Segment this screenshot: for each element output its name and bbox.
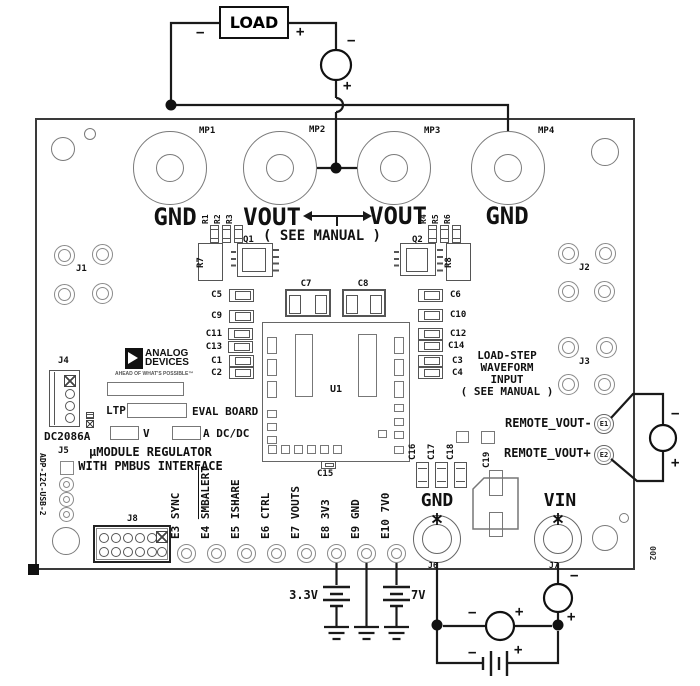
j3-pad (596, 337, 617, 358)
mp4-label: MP4 (538, 127, 554, 136)
j8-pin (111, 533, 121, 543)
eval-board-label: EVAL BOARD (192, 406, 258, 417)
j8-label: J8 (127, 515, 138, 524)
voltmeter-right-letter: V (653, 431, 673, 446)
u1-pad (378, 430, 387, 438)
pad (481, 431, 495, 444)
turret-e10 (387, 544, 406, 563)
u1-pad (267, 423, 277, 431)
turret-e3 (177, 544, 196, 563)
c19-label: C19 (483, 452, 492, 468)
c17-label: C17 (428, 444, 437, 460)
turret-e5 (237, 544, 256, 563)
turret-j6-center (422, 524, 452, 554)
j5-label: J5 (58, 447, 69, 456)
c5-body (229, 289, 254, 302)
j8-pin (135, 533, 145, 543)
u1-detail (295, 334, 313, 397)
voltmeter-bottom-plus-sign: + (515, 605, 523, 619)
pin-label-e4: E4 SMBALERT (200, 466, 211, 539)
turret-mp2-center (266, 154, 294, 182)
j4-pin (65, 401, 75, 411)
r3-label: R3 (226, 214, 235, 224)
u1-pad (268, 445, 277, 454)
c15-label: C15 (317, 470, 333, 479)
u1-pad (333, 445, 342, 454)
j2-pad (594, 281, 615, 302)
vout-left-label: VOUT (236, 205, 308, 229)
mp1-label: MP1 (199, 127, 215, 136)
blank-field (107, 382, 184, 396)
loadstep-note: LOAD-STEP WAVEFORM INPUT ( SEE MANUAL ) (452, 350, 562, 398)
battery-33v-label: 3.3V (280, 589, 318, 601)
r1-label: R1 (202, 214, 211, 224)
vin-power-label: VIN (538, 492, 582, 510)
u1-pad (394, 359, 404, 376)
j8-pin (147, 547, 157, 557)
c1-label: C1 (190, 357, 222, 366)
u1-pad (267, 337, 277, 354)
r7-label: R7 (197, 257, 206, 268)
pin-label-e3: E3 SYNC (170, 493, 181, 539)
small-hole-icon (619, 513, 629, 523)
battery-source-icon (483, 651, 507, 676)
pin-label-e6: E6 CTRL (260, 493, 271, 539)
j1-pad (92, 283, 113, 304)
c13-body (228, 341, 253, 353)
mount-hole-icon (52, 527, 80, 555)
c13-label: C13 (190, 343, 222, 352)
u1-label: U1 (330, 385, 342, 395)
u1-pad (267, 381, 277, 398)
ammeter-top-plus-sign: + (343, 79, 351, 93)
c19-pad (489, 512, 503, 537)
u1-pad (281, 445, 290, 454)
j8-pin (123, 547, 133, 557)
c8-label: C8 (347, 280, 379, 289)
ltp-blank-field (127, 403, 187, 418)
u1-pad (267, 436, 277, 444)
r5-label: R5 (432, 214, 441, 224)
turret-e4 (207, 544, 226, 563)
u1-pad (394, 446, 404, 454)
mount-hole-icon (51, 137, 75, 161)
c3-body (418, 355, 443, 367)
battery-33v-icon (323, 587, 350, 606)
j8-pin (111, 547, 121, 557)
j3-label: J3 (579, 358, 590, 367)
c1-body (229, 355, 254, 367)
voltmeter-bottom-letter: V (490, 619, 510, 634)
remote-vout-minus-label: REMOTE_VOUT- (505, 417, 592, 429)
r2-pad (222, 225, 231, 243)
model-number-label: DC2086A (44, 431, 90, 442)
pin-label-e5: E5 ISHARE (230, 479, 241, 539)
r1-pad (210, 225, 219, 243)
j1-pad (92, 244, 113, 265)
c9-label: C9 (190, 312, 222, 321)
j8-pin (99, 547, 109, 557)
v-unit-label: V (143, 428, 150, 439)
battery-minus-sign: − (468, 646, 476, 660)
c19-pad (489, 470, 503, 496)
gnd-left-label: GND (145, 205, 205, 229)
c7-label: C7 (290, 280, 322, 289)
pin-label-e10: E10 7V0 (380, 493, 391, 539)
a-dcdc-label: A DC/DC (203, 428, 249, 439)
c16-label: C16 (409, 444, 418, 460)
u1-pad (267, 359, 277, 376)
small-hole-icon (84, 128, 96, 140)
j4-label: J4 (58, 357, 69, 366)
small-component-icon (86, 412, 94, 419)
q1-pins-icon (231, 251, 236, 271)
ltp-label: LTP (106, 405, 126, 416)
ammeter-bottom-minus-sign: − (570, 569, 578, 583)
q2-inner (406, 248, 428, 272)
turret-j7-center (543, 524, 573, 554)
c6-label: C6 (450, 291, 461, 300)
c18-label: C18 (447, 444, 456, 460)
c10-label: C10 (450, 311, 466, 320)
turret-e9 (357, 544, 376, 563)
ground-icon (324, 627, 409, 639)
battery-7v-label: 7V (411, 589, 425, 601)
c18-body (454, 462, 467, 488)
schematic-canvas: MP1 MP2 MP3 MP4 GND VOUT VOUT GND ( SEE … (0, 0, 700, 686)
turret-e2: E2 (594, 445, 614, 465)
r4-pad (428, 225, 437, 243)
u1-pad (394, 337, 404, 354)
j2-pad (558, 281, 579, 302)
j8-pin (135, 547, 145, 557)
turret-mp1-center (156, 154, 184, 182)
u1-pad (320, 445, 329, 454)
turret-e1: E1 (594, 414, 614, 434)
u1-pad (294, 445, 303, 454)
pin-label-e8: E8 3V3 (320, 499, 331, 539)
r6-pad (452, 225, 461, 243)
c12-body (418, 328, 443, 340)
c14-body (418, 340, 443, 352)
c16-body (416, 462, 429, 488)
ammeter-bottom-plus-sign: + (567, 610, 575, 624)
r2-label: R2 (214, 214, 223, 224)
turret-e8 (327, 544, 346, 563)
turret-e7 (297, 544, 316, 563)
u1-pad (267, 410, 277, 418)
turret-e6 (267, 544, 286, 563)
j5-pad (59, 477, 74, 492)
mount-hole-icon (591, 138, 619, 166)
c11-label: C11 (190, 330, 222, 339)
module-regulator-label: μMODULE REGULATOR (89, 446, 211, 458)
c9-body (229, 310, 254, 323)
c2-body (229, 367, 254, 379)
mp3-label: MP3 (424, 127, 440, 136)
ammeter-top-minus-sign: − (347, 34, 355, 48)
small-component-icon (86, 420, 94, 428)
j8-pin (123, 533, 133, 543)
pin-label-e9: E9 GND (350, 499, 361, 539)
see-manual-note: ( SEE MANUAL ) (260, 229, 384, 243)
q2-pins-icon (437, 249, 443, 273)
side-text-right: 002 (648, 546, 656, 560)
voltmeter-right-plus-sign: + (671, 456, 679, 470)
battery-7v-icon (383, 587, 410, 606)
load-minus-sign: − (196, 26, 204, 40)
j7-label: J7 (549, 562, 559, 570)
junction-dot-icon (166, 100, 177, 111)
r6-label: R6 (444, 214, 453, 224)
turret-mp4-center (494, 154, 522, 182)
battery-plus-sign: + (514, 643, 522, 657)
board-corner-mark (28, 564, 39, 575)
j1-pad (54, 284, 75, 305)
a-blank-field (172, 426, 201, 440)
j6-label: J6 (428, 562, 438, 570)
j2-pad (558, 243, 579, 264)
q1-pins-icon (273, 249, 279, 273)
c6-body (418, 289, 443, 302)
voltmeter-bottom-minus-sign: − (468, 606, 476, 620)
j8-pin (99, 533, 109, 543)
c15-body (321, 461, 336, 469)
mp2-label: MP2 (309, 126, 325, 135)
j4-pin (65, 413, 75, 423)
u1-detail (358, 334, 377, 397)
voltmeter-right-minus-sign: − (671, 407, 679, 421)
j3-pad (594, 374, 615, 395)
c10-body (418, 309, 443, 322)
j2-label: J2 (579, 264, 590, 273)
j5-pad (59, 492, 74, 507)
u1-pad (394, 431, 404, 439)
c8-body (342, 289, 386, 317)
j5-pin1-pad (60, 461, 74, 475)
j1-label: J1 (76, 265, 87, 274)
mount-hole-icon (592, 525, 618, 551)
j8-pin1-icon (156, 531, 168, 543)
c4-body (418, 367, 443, 379)
wire-load-negative (171, 23, 219, 105)
j5-pad (59, 507, 74, 522)
wire-hop-arc (336, 98, 343, 112)
c17-body (435, 462, 448, 488)
u1-pad (394, 404, 404, 412)
load-box: LOAD (219, 6, 289, 39)
j4-pin1-icon (64, 375, 76, 387)
q1-inner (242, 248, 266, 272)
r5-pad (440, 225, 449, 243)
u1-pad (394, 418, 404, 426)
gnd-right-label: GND (477, 204, 537, 228)
analog-devices-logo-icon (125, 348, 143, 369)
logo-tagline: AHEAD OF WHAT'S POSSIBLE™ (115, 372, 193, 377)
r4-label: R4 (420, 214, 429, 224)
remote-vout-plus-label: REMOTE_VOUT+ (504, 447, 591, 459)
pin-label-e7: E7 VOUTS (290, 486, 301, 539)
r8-label: R8 (445, 257, 454, 268)
turret-mp3-center (380, 154, 408, 182)
j8-pin (157, 547, 167, 557)
junction-dot-icon (553, 620, 564, 631)
logo-text-devices: DEVICES (145, 358, 189, 368)
junction-dot-icon (432, 620, 443, 631)
c2-label: C2 (190, 369, 222, 378)
u1-pad (307, 445, 316, 454)
v-blank-field (110, 426, 139, 440)
c7-body (285, 289, 331, 317)
u1-pad (394, 381, 404, 398)
j4-pin (65, 389, 75, 399)
r3-pad (234, 225, 243, 243)
gnd-power-label: GND (415, 492, 459, 510)
q2-pins-icon (394, 251, 399, 271)
c5-label: C5 (190, 291, 222, 300)
ammeter-bottom-letter: A (548, 591, 568, 606)
j1-pad (54, 245, 75, 266)
load-plus-sign: + (296, 25, 304, 39)
pad (456, 431, 469, 443)
j2-pad (595, 243, 616, 264)
c11-body (228, 328, 253, 340)
ammeter-top-letter: A (326, 58, 346, 73)
c12-label: C12 (450, 330, 466, 339)
side-text-left: ADP-I2C-USB-2 (37, 453, 46, 516)
